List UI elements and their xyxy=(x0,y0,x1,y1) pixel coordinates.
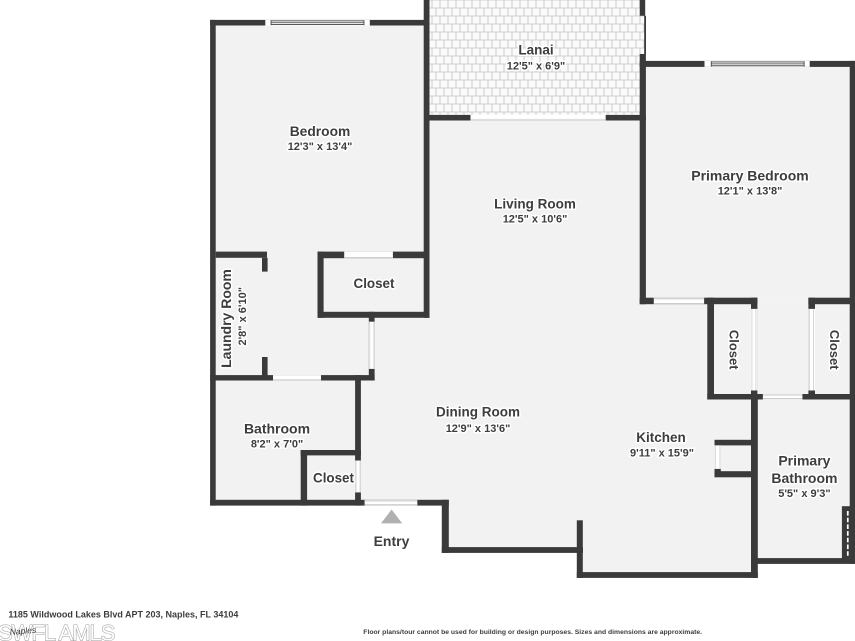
svg-text:Laundry Room: Laundry Room xyxy=(218,269,234,368)
svg-text:12'9" x 13'6": 12'9" x 13'6" xyxy=(446,423,511,435)
svg-text:Floor plans/tour cannot be use: Floor plans/tour cannot be used for buil… xyxy=(363,629,702,636)
svg-text:8'2" x 7'0": 8'2" x 7'0" xyxy=(251,439,303,451)
svg-text:Lanai: Lanai xyxy=(518,43,553,58)
svg-text:5'5" x 9'3": 5'5" x 9'3" xyxy=(778,488,830,500)
svg-text:Bathroom: Bathroom xyxy=(771,470,837,486)
svg-text:Dining Room: Dining Room xyxy=(436,405,520,420)
svg-text:Bathroom: Bathroom xyxy=(244,421,310,437)
svg-text:Closet: Closet xyxy=(313,470,354,485)
svg-text:12'1" x 13'8": 12'1" x 13'8" xyxy=(718,186,783,198)
svg-text:Primary Bedroom: Primary Bedroom xyxy=(691,167,808,183)
svg-text:12'3" x 13'4": 12'3" x 13'4" xyxy=(288,141,353,153)
svg-text:Bedroom: Bedroom xyxy=(290,124,351,139)
svg-text:1185 Wildwood Lakes Blvd APT 2: 1185 Wildwood Lakes Blvd APT 203, Naples… xyxy=(8,610,238,620)
svg-text:Closet: Closet xyxy=(827,330,842,370)
svg-text:Living Room: Living Room xyxy=(494,196,576,211)
svg-text:Closet: Closet xyxy=(354,276,395,291)
svg-text:Closet: Closet xyxy=(727,330,742,370)
svg-text:12'5" x 10'6": 12'5" x 10'6" xyxy=(503,213,568,225)
svg-text:Primary: Primary xyxy=(778,453,830,469)
svg-text:12'5" x 6'9": 12'5" x 6'9" xyxy=(507,61,565,73)
svg-text:2'8" x 6'10": 2'8" x 6'10" xyxy=(237,287,249,345)
svg-text:9'11" x 15'9": 9'11" x 15'9" xyxy=(630,448,694,460)
svg-text:Kitchen: Kitchen xyxy=(636,430,686,445)
svg-text:Entry: Entry xyxy=(374,533,410,549)
